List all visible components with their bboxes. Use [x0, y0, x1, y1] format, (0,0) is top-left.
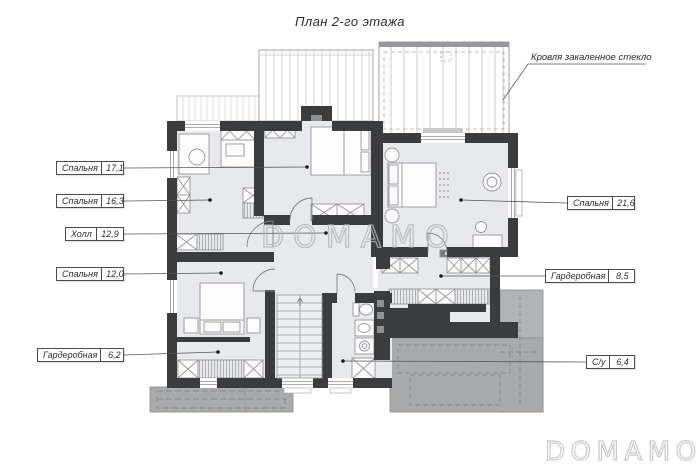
- room-label-bedroom-163: Спальня 16,3: [56, 194, 124, 208]
- room-name: Гардеробная: [546, 270, 608, 282]
- room-label-bedroom-120: Спальня 12,0: [56, 267, 124, 281]
- room-name: Спальня: [57, 268, 101, 280]
- floor-plan-page: План 2-го этажа: [0, 0, 700, 467]
- room-area: 6,4: [609, 356, 636, 368]
- room-area: 17,1: [101, 162, 128, 174]
- room-label-wardrobe-85: Гардеробная 8,5: [545, 269, 635, 283]
- room-name: Спальня: [57, 195, 101, 207]
- room-label-bedroom-171: Спальня 17,1: [56, 161, 124, 175]
- room-area: 8,5: [608, 270, 635, 282]
- room-name: С/у: [587, 356, 609, 368]
- room-label-bedroom-216: Спальня 21,6: [567, 196, 635, 210]
- room-name: Спальня: [57, 162, 101, 174]
- canopy-hatch-left: [177, 50, 373, 121]
- watermark-corner: DOMAMO: [545, 437, 700, 467]
- room-label-wardrobe-62: Гардеробная 6,2: [37, 348, 124, 362]
- room-area: 21,6: [612, 197, 639, 209]
- room-label-bathroom: С/у 6,4: [586, 355, 635, 369]
- roof-annotation: Кровля закаленное стекло: [531, 52, 652, 63]
- room-name: Гардеробная: [38, 349, 100, 361]
- room-area: 6,2: [100, 349, 127, 361]
- room-area: 16,3: [101, 195, 128, 207]
- room-name: Холл: [66, 228, 96, 240]
- room-area: 12,0: [101, 268, 128, 280]
- watermark-center: DOMAMO: [261, 220, 458, 255]
- room-area: 12,9: [96, 228, 123, 240]
- staircase: [277, 295, 322, 378]
- room-name: Спальня: [568, 197, 612, 209]
- room-label-hall: Холл 12,9: [65, 227, 124, 241]
- glass-roof: [379, 42, 509, 135]
